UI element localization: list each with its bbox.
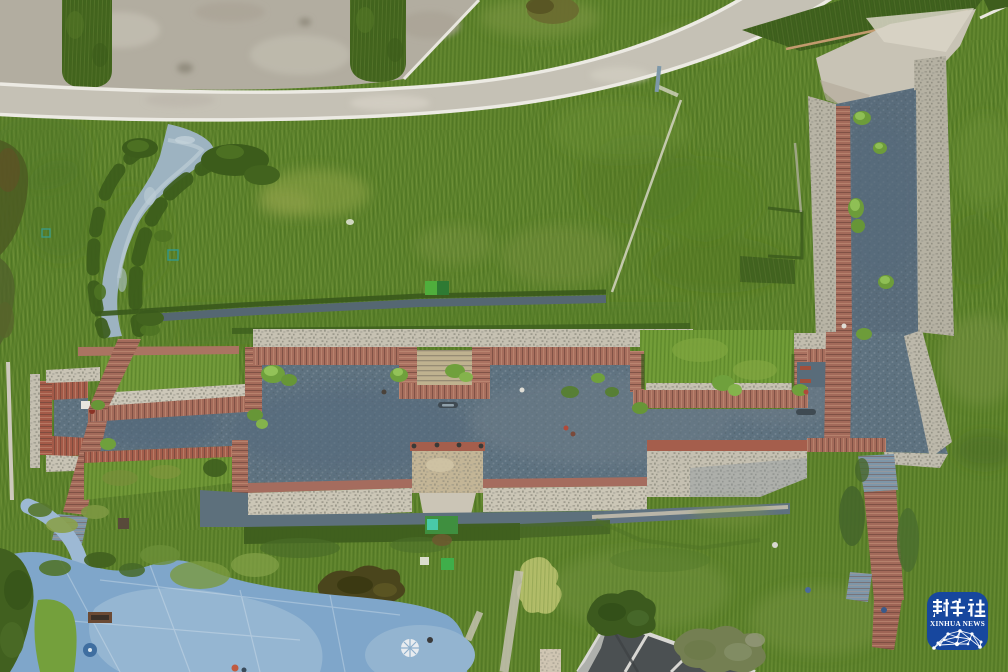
svg-text:XINHUA NEWS: XINHUA NEWS [930, 620, 985, 628]
